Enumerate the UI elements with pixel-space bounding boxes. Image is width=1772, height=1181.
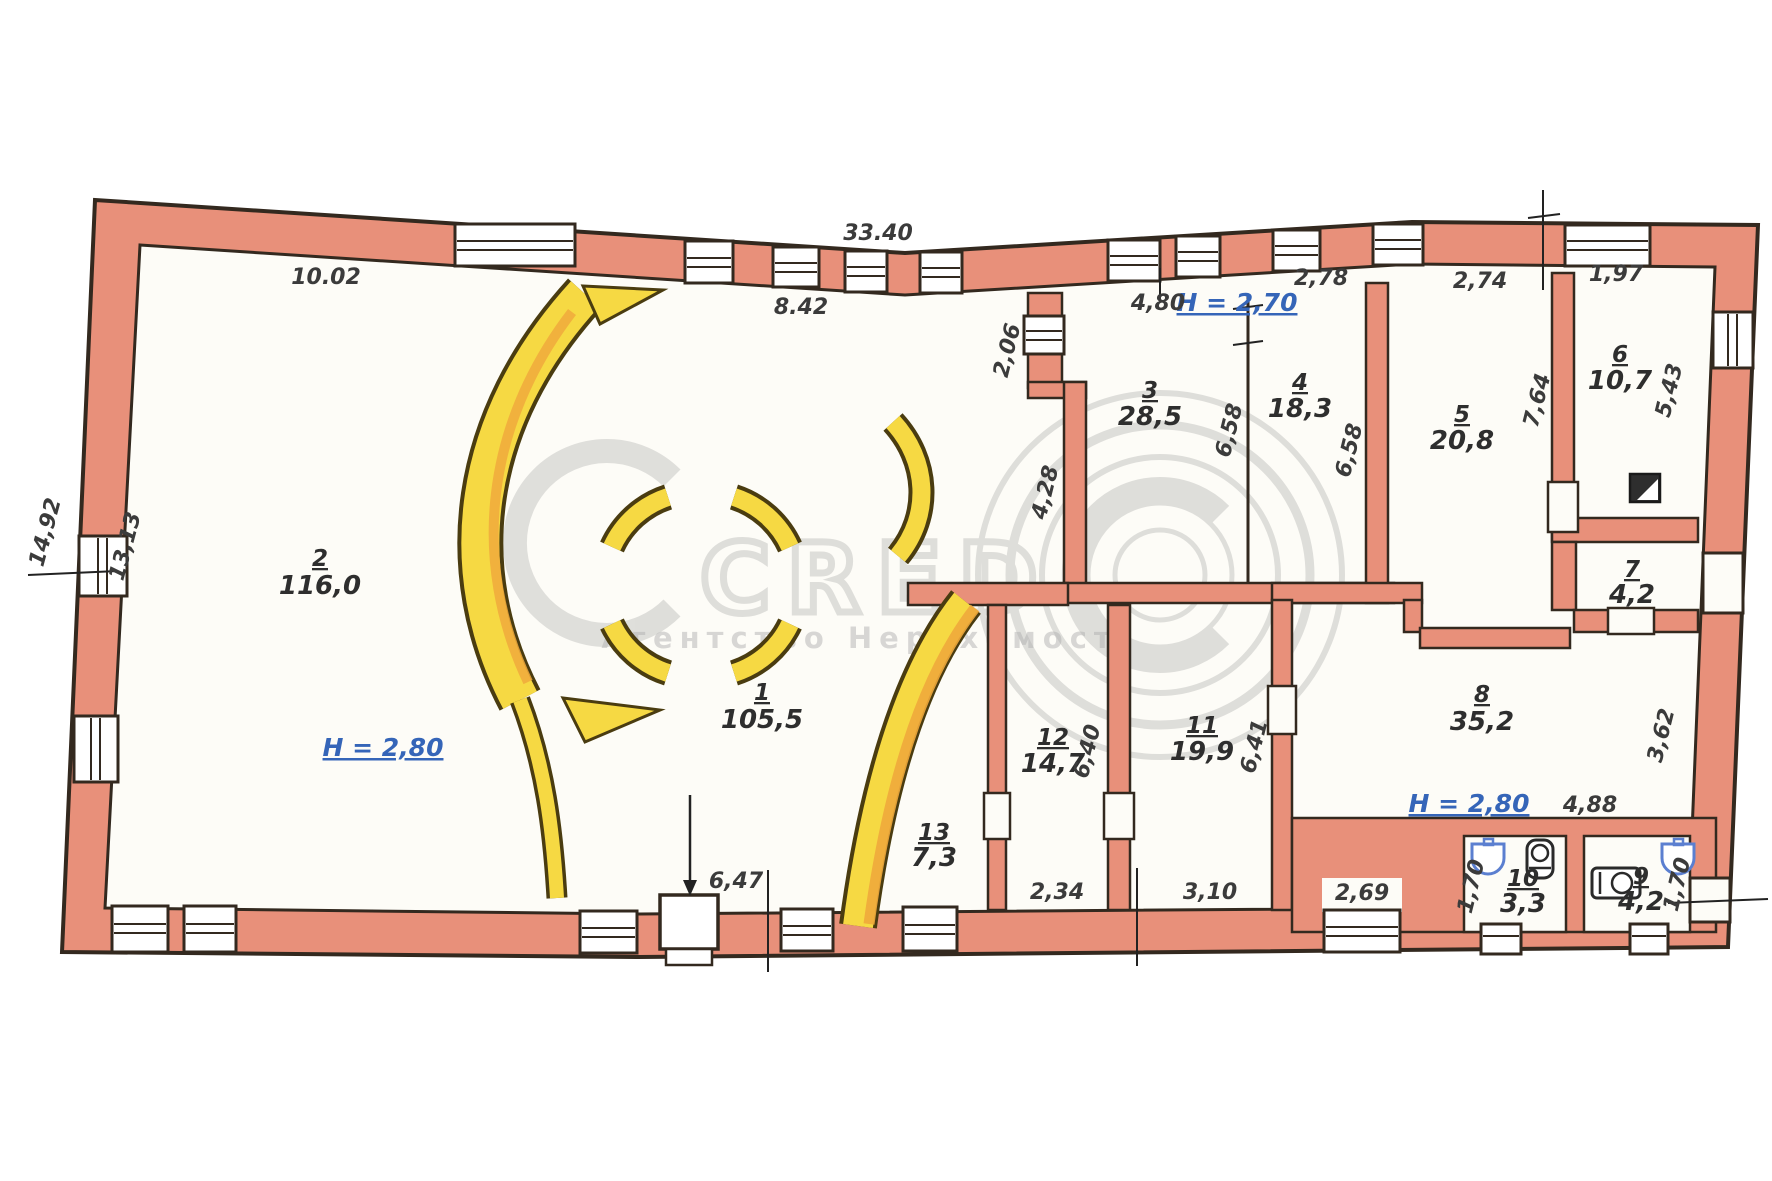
height-label-room2: H = 2,80 xyxy=(323,733,444,762)
window xyxy=(112,906,168,952)
room-6-number: 6 xyxy=(1612,342,1628,368)
window xyxy=(1373,224,1423,265)
door-room13-room12 xyxy=(984,793,1010,839)
room-5-number: 5 xyxy=(1454,402,1470,428)
wall-room7-left xyxy=(1552,542,1576,610)
wall-room3-left xyxy=(1064,382,1086,587)
floor-plan-drawing: CRED Агентство Нерухомості xyxy=(0,0,1772,1181)
window xyxy=(74,716,118,782)
window xyxy=(1481,924,1521,954)
dim-room6-width: 1,97 xyxy=(1589,262,1644,287)
room-1-area: 105,5 xyxy=(721,705,803,735)
window xyxy=(1630,924,1668,954)
wall-room11-room12 xyxy=(1108,605,1130,910)
window xyxy=(1176,236,1220,277)
dim-bottom-mid: 2,69 xyxy=(1335,881,1389,906)
door-right-mid xyxy=(1703,553,1743,613)
room-10-area: 3,3 xyxy=(1500,889,1546,919)
window xyxy=(1324,910,1400,952)
height-label-room8: H = 2,80 xyxy=(1409,789,1530,818)
wall-room1213-top xyxy=(908,583,1068,605)
dim-room11-width: 3,10 xyxy=(1183,880,1237,905)
window xyxy=(773,247,819,287)
room-1-number: 1 xyxy=(754,680,770,706)
window xyxy=(1565,225,1650,266)
dim-room8-width: 4,88 xyxy=(1562,793,1617,818)
wall-room8-left xyxy=(1272,600,1292,910)
window xyxy=(1273,230,1320,271)
floor-plan-page: CRED Агентство Нерухомості xyxy=(0,0,1772,1181)
window xyxy=(455,224,575,266)
room-9-area: 4,2 xyxy=(1617,887,1664,917)
room-6-area: 10,7 xyxy=(1588,366,1653,396)
room-11-area: 19,9 xyxy=(1170,737,1234,767)
room-4-area: 18,3 xyxy=(1268,394,1332,424)
room-7-area: 4,2 xyxy=(1608,580,1655,610)
window xyxy=(580,911,637,953)
room-12-number: 12 xyxy=(1037,725,1069,751)
window xyxy=(781,909,833,951)
wall-room8-top xyxy=(1420,628,1570,648)
height-label-top: H = 2,70 xyxy=(1177,288,1298,317)
dim-top-mid: 8.42 xyxy=(774,295,828,320)
door-room12-room11 xyxy=(1104,793,1134,839)
dim-room12-width: 2,34 xyxy=(1030,880,1084,905)
room-8-number: 8 xyxy=(1474,682,1490,708)
window xyxy=(184,906,236,952)
room-2-area: 116,0 xyxy=(279,571,361,601)
dim-room5-width: 2,74 xyxy=(1453,269,1507,294)
window xyxy=(1108,240,1160,281)
wall-room4-room5 xyxy=(1366,283,1388,603)
window xyxy=(903,907,957,951)
dim-room3-width: 4,80 xyxy=(1130,291,1185,316)
window xyxy=(685,241,733,283)
wall-room13-right xyxy=(988,605,1006,910)
window xyxy=(1713,312,1753,368)
wall-room5-bottom xyxy=(1272,583,1422,603)
window xyxy=(920,252,962,293)
room-11-number: 11 xyxy=(1186,713,1218,739)
room-3-area: 28,5 xyxy=(1118,402,1182,432)
room-8-area: 35,2 xyxy=(1450,707,1514,737)
dim-bottom-left: 6,47 xyxy=(709,869,764,894)
vent-shaft-icon xyxy=(1630,474,1660,502)
dim-left-outer: 14,92 xyxy=(25,495,67,569)
dim-room4-width: 2,78 xyxy=(1294,266,1348,291)
door-room7 xyxy=(1608,608,1654,634)
room-5-area: 20,8 xyxy=(1430,426,1494,456)
room-2-number: 2 xyxy=(312,546,328,572)
room-3-number: 3 xyxy=(1142,378,1158,404)
dim-overall-top: 33.40 xyxy=(843,221,913,246)
room-4-number: 4 xyxy=(1291,370,1308,396)
room-13-area: 7,3 xyxy=(911,843,957,873)
dim-top-left: 10.02 xyxy=(291,265,361,290)
window xyxy=(1024,316,1064,354)
door-room7-left xyxy=(1548,482,1578,532)
watermark-agency-text: Агентство Нерухомості xyxy=(601,621,1134,655)
window xyxy=(845,251,887,292)
